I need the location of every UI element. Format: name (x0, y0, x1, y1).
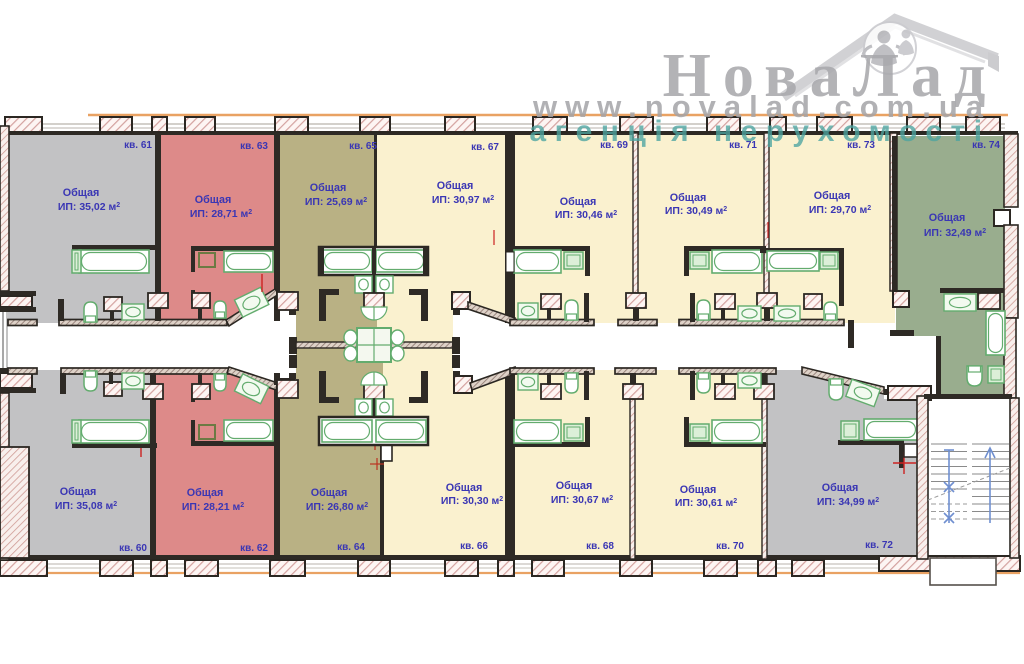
svg-text:Общая: Общая (446, 482, 483, 494)
svg-text:Общая: Общая (310, 182, 347, 194)
svg-text:ИП: 28,71 м2: ИП: 28,71 м2 (190, 208, 252, 220)
svg-text:Общая: Общая (556, 480, 593, 492)
svg-text:ИП: 30,49 м2: ИП: 30,49 м2 (665, 205, 727, 217)
svg-text:кв. 67: кв. 67 (471, 142, 499, 153)
svg-text:ИП: 25,69 м2: ИП: 25,69 м2 (305, 196, 367, 208)
svg-text:кв. 70: кв. 70 (716, 541, 744, 552)
svg-text:ИП: 26,80 м2: ИП: 26,80 м2 (306, 501, 368, 513)
svg-text:Общая: Общая (63, 187, 100, 199)
svg-text:Общая: Общая (680, 484, 717, 496)
svg-text:кв. 64: кв. 64 (337, 542, 365, 553)
svg-text:ИП: 35,02 м2: ИП: 35,02 м2 (58, 201, 120, 213)
svg-text:кв. 60: кв. 60 (119, 543, 147, 554)
svg-text:кв. 66: кв. 66 (460, 541, 488, 552)
svg-text:ИП: 30,61 м2: ИП: 30,61 м2 (675, 497, 737, 509)
svg-text:кв. 61: кв. 61 (124, 140, 152, 151)
svg-text:ИП: 34,99 м2: ИП: 34,99 м2 (817, 496, 879, 508)
svg-text:Общая: Общая (814, 190, 851, 202)
svg-text:Общая: Общая (670, 192, 707, 204)
svg-text:Общая: Общая (195, 194, 232, 206)
svg-text:ИП: 28,21 м2: ИП: 28,21 м2 (182, 501, 244, 513)
svg-text:кв. 68: кв. 68 (586, 541, 614, 552)
svg-text:ИП: 30,46 м2: ИП: 30,46 м2 (555, 209, 617, 221)
svg-text:ИП: 32,49 м2: ИП: 32,49 м2 (924, 227, 986, 239)
svg-text:Общая: Общая (187, 487, 224, 499)
svg-text:ИП: 30,30 м2: ИП: 30,30 м2 (441, 495, 503, 507)
svg-text:агенція нерухомості: агенція нерухомості (529, 115, 990, 148)
svg-text:ИП: 35,08 м2: ИП: 35,08 м2 (55, 500, 117, 512)
svg-text:Общая: Общая (311, 487, 348, 499)
svg-text:Общая: Общая (437, 180, 474, 192)
svg-text:Общая: Общая (60, 486, 97, 498)
svg-text:ИП: 30,67 м2: ИП: 30,67 м2 (551, 494, 613, 506)
svg-text:ИП: 30,97 м2: ИП: 30,97 м2 (432, 194, 494, 206)
svg-text:Общая: Общая (929, 212, 966, 224)
svg-text:кв. 72: кв. 72 (865, 540, 893, 551)
svg-text:ИП: 29,70 м2: ИП: 29,70 м2 (809, 204, 871, 216)
svg-text:кв. 62: кв. 62 (240, 543, 268, 554)
svg-text:кв. 63: кв. 63 (240, 141, 268, 152)
svg-text:кв. 65: кв. 65 (349, 141, 377, 152)
svg-text:Общая: Общая (822, 482, 859, 494)
svg-text:Общая: Общая (560, 196, 597, 208)
